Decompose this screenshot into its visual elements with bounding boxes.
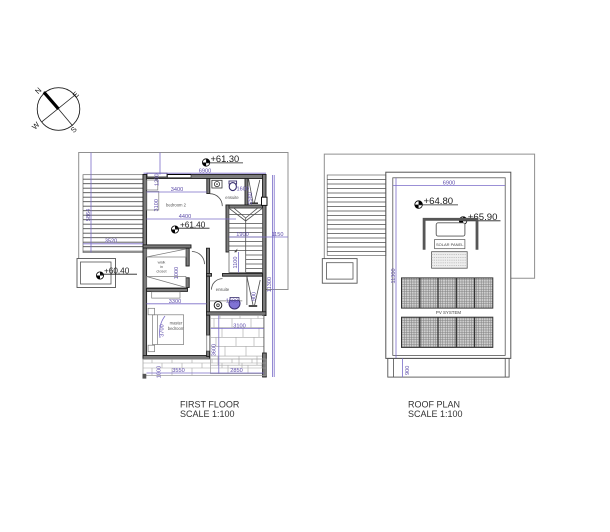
svg-text:3600: 3600 [212, 344, 218, 356]
svg-text:closet: closet [156, 269, 167, 274]
svg-text:1100: 1100 [233, 256, 239, 268]
svg-text:2850: 2850 [230, 368, 242, 374]
svg-text:+64.80: +64.80 [424, 196, 454, 207]
svg-text:+61.30: +61.30 [211, 154, 240, 164]
svg-text:6900: 6900 [199, 168, 211, 174]
svg-text:+60.40: +60.40 [104, 266, 130, 275]
svg-text:11300: 11300 [267, 277, 273, 292]
svg-text:+61.40: +61.40 [180, 220, 206, 229]
svg-text:3550: 3550 [172, 368, 184, 374]
svg-text:+65.90: +65.90 [468, 212, 498, 223]
svg-text:1150: 1150 [271, 232, 283, 238]
svg-text:bedroom 2: bedroom 2 [166, 203, 187, 208]
svg-text:SCALE 1:100: SCALE 1:100 [180, 409, 235, 419]
svg-text:ensuite: ensuite [216, 287, 230, 292]
svg-text:1000: 1000 [174, 267, 180, 279]
svg-text:1600: 1600 [237, 187, 249, 193]
svg-text:SCALE 1:100: SCALE 1:100 [408, 409, 463, 419]
svg-text:1000: 1000 [157, 366, 163, 378]
svg-text:PV SYSTEM: PV SYSTEM [436, 310, 461, 315]
svg-text:6900: 6900 [443, 181, 455, 187]
svg-text:master: master [170, 321, 183, 326]
svg-text:bedroom: bedroom [168, 326, 185, 331]
svg-text:900: 900 [405, 366, 411, 375]
svg-text:11300: 11300 [391, 268, 397, 283]
svg-text:900: 900 [252, 292, 258, 301]
svg-text:1900: 1900 [236, 232, 248, 238]
svg-text:1600: 1600 [226, 299, 238, 305]
svg-text:SOLAR PANEL: SOLAR PANEL [436, 242, 464, 247]
svg-text:1200: 1200 [155, 174, 161, 186]
svg-text:ensuite: ensuite [225, 195, 239, 200]
svg-text:1560: 1560 [248, 192, 254, 204]
svg-text:3100: 3100 [154, 199, 160, 211]
